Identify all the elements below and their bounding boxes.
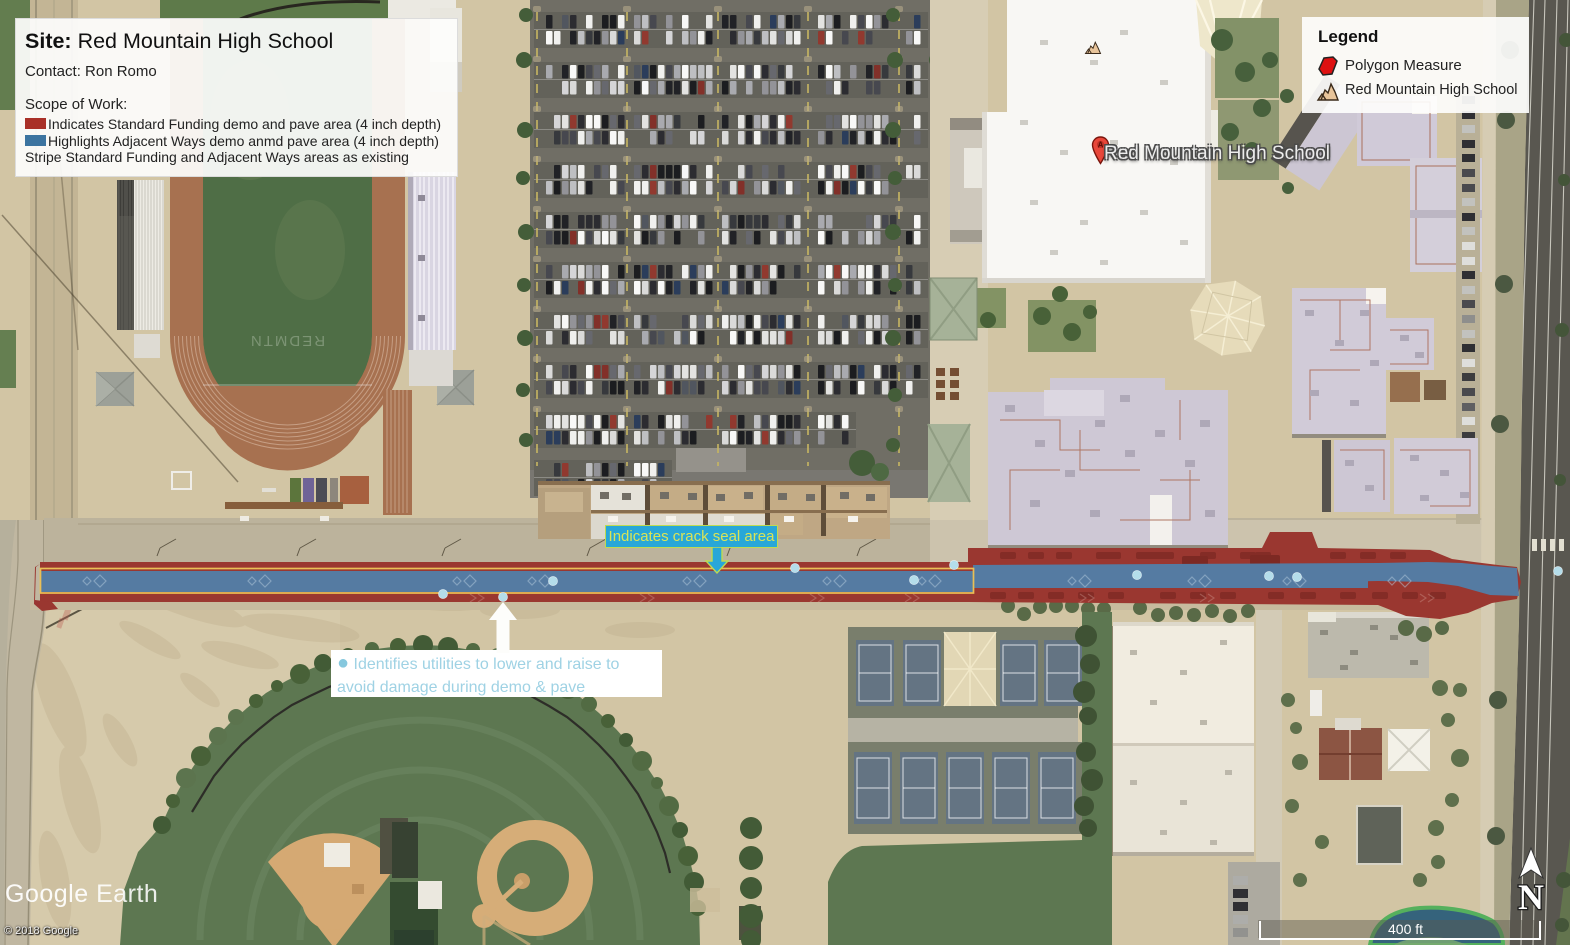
svg-text:A: A — [1098, 141, 1104, 150]
svg-text:REDMTN: REDMTN — [249, 332, 325, 349]
svg-text:N: N — [1518, 877, 1544, 915]
